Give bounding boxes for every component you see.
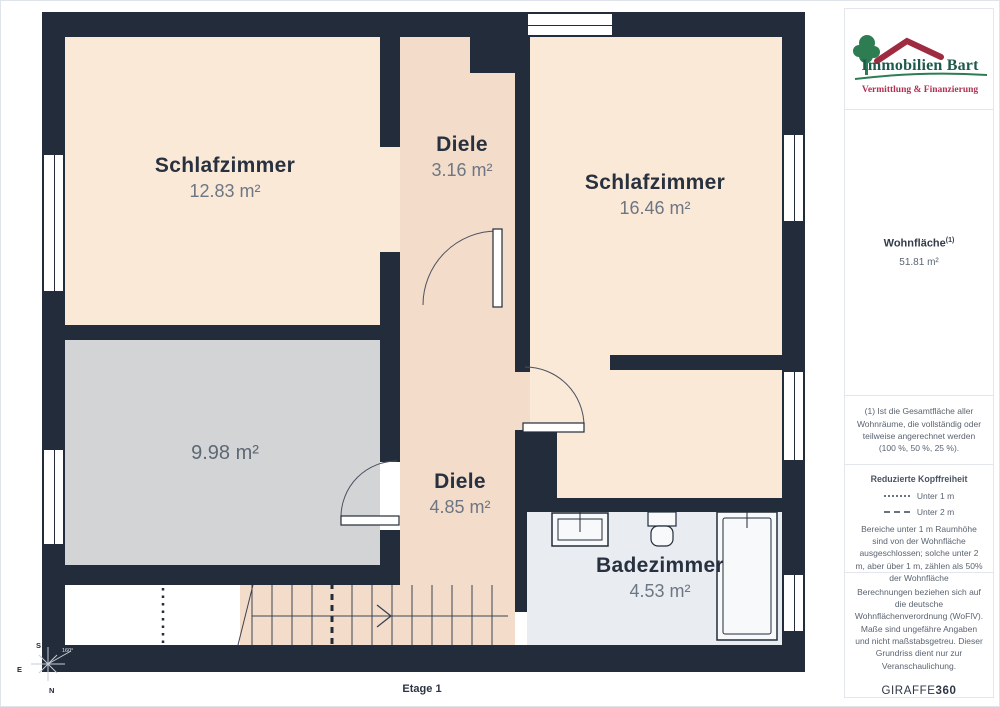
room-area: 16.46 m² <box>585 198 725 219</box>
sidebar: Immobilien Bart Vermittlung & Finanzieru… <box>844 8 994 698</box>
room-label-gray-room: 9.98 m² <box>191 439 259 465</box>
disclaimer-text: Berechnungen beziehen sich auf die deuts… <box>845 586 993 672</box>
room-label-hall1: Diele 3.16 m² <box>431 133 492 181</box>
brand-suffix: 360 <box>936 685 957 697</box>
legend-section: Reduzierte Kopffreiheit Unter 1 m Unter … <box>845 464 993 572</box>
legend-item-under-1m: Unter 1 m <box>845 491 993 501</box>
agency-tagline: Vermittlung & Finanzierung <box>845 85 995 95</box>
legend-item-under-2m: Unter 2 m <box>845 507 993 517</box>
living-area-value: 51.81 m² <box>899 257 938 268</box>
living-area-section: Wohnfläche(1) 51.81 m² <box>845 109 993 395</box>
compass-east-label: E <box>17 665 22 674</box>
agency-name: Immobilien Bart <box>845 57 995 75</box>
compass-north-label: N <box>49 686 54 695</box>
room-area: 9.98 m² <box>191 442 259 465</box>
door-bedroom2 <box>523 367 584 432</box>
footnote-text: (1) Ist die Gesamtfläche aller Wohnräume… <box>845 405 993 454</box>
room-name: Schlafzimmer <box>155 154 295 178</box>
giraffe360-brand: GIRAFFE360 <box>881 685 956 697</box>
legend-title: Reduzierte Kopffreiheit <box>845 474 993 484</box>
legend-label: Unter 2 m <box>917 507 954 517</box>
room-label-bedroom1: Schlafzimmer 12.83 m² <box>155 154 295 202</box>
compass-south-label: S <box>36 641 41 650</box>
room-area: 4.85 m² <box>429 497 490 518</box>
agency-logo: Immobilien Bart Vermittlung & Finanzieru… <box>845 9 993 109</box>
shower-icon <box>717 512 777 640</box>
room-area: 4.53 m² <box>596 581 724 602</box>
living-area-label: Wohnfläche(1) <box>884 237 955 250</box>
room-label-hall2: Diele 4.85 m² <box>429 470 490 518</box>
door-corridor <box>423 229 502 307</box>
toilet-icon <box>648 512 676 546</box>
brand-name: GIRAFFE <box>881 685 935 697</box>
door-gray-room <box>341 461 399 525</box>
room-label-bathroom: Badezimmer 4.53 m² <box>596 554 724 602</box>
living-area-footnote-marker: (1) <box>946 237 955 244</box>
living-area-label-text: Wohnfläche <box>884 237 946 249</box>
floor-label: Etage 1 <box>402 683 441 695</box>
dashed-line-icon <box>884 511 910 513</box>
room-area: 3.16 m² <box>431 160 492 181</box>
room-name: Schlafzimmer <box>585 171 725 195</box>
compass-icon: S E N 160° <box>17 641 73 695</box>
sink-icon <box>552 503 608 546</box>
floor-plan: S E N 160° Schlafzimmer 12.83 m² Diele 3… <box>0 0 838 707</box>
room-label-bedroom2: Schlafzimmer 16.46 m² <box>585 171 725 219</box>
room-name: Diele <box>429 470 490 494</box>
disclaimer-section: Berechnungen beziehen sich auf die deuts… <box>845 572 993 697</box>
room-area: 12.83 m² <box>155 181 295 202</box>
room-name: Badezimmer <box>596 554 724 578</box>
room-name: Diele <box>431 133 492 157</box>
compass-rotation-label: 160° <box>62 648 73 654</box>
footnote-section: (1) Ist die Gesamtfläche aller Wohnräume… <box>845 395 993 464</box>
dotted-line-icon <box>884 495 910 497</box>
stairs-icon <box>238 585 508 645</box>
legend-label: Unter 1 m <box>917 491 954 501</box>
